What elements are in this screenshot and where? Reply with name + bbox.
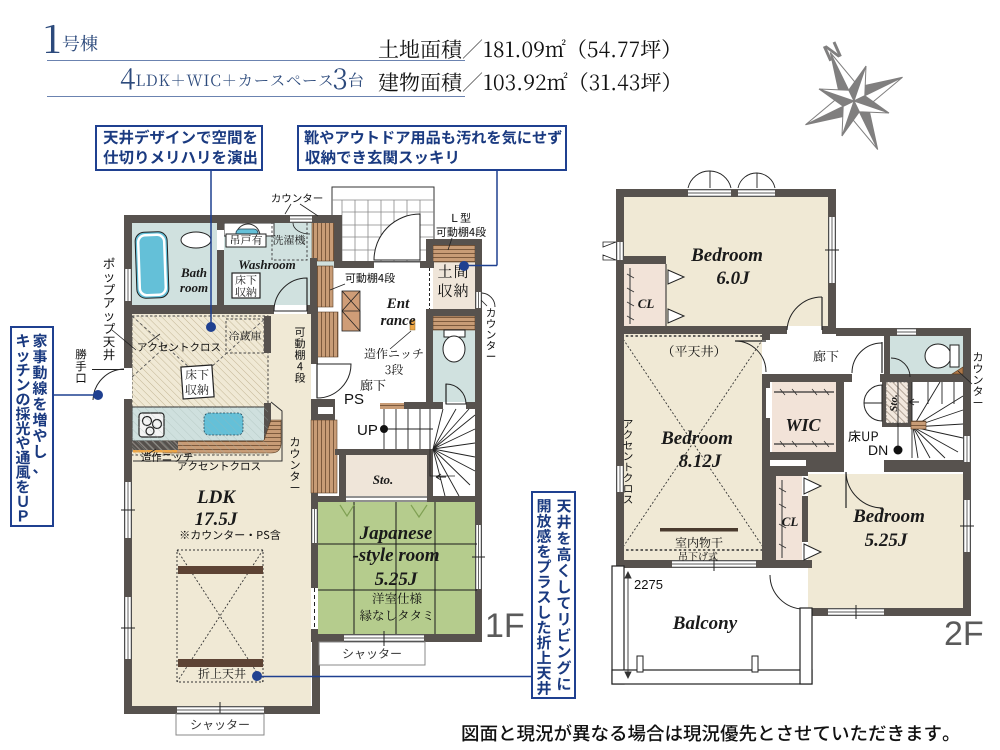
svg-text:Balcony: Balcony bbox=[672, 613, 738, 634]
svg-text:Washroom: Washroom bbox=[238, 257, 296, 272]
svg-text:UP: UP bbox=[357, 422, 378, 439]
svg-text:rance: rance bbox=[381, 313, 416, 329]
svg-text:CL: CL bbox=[782, 514, 799, 529]
svg-text:6.0J: 6.0J bbox=[716, 268, 750, 289]
svg-text:Sto.: Sto. bbox=[888, 394, 900, 411]
svg-text:Japanese: Japanese bbox=[359, 523, 433, 544]
svg-text:PS: PS bbox=[344, 391, 364, 408]
svg-text:LDK: LDK bbox=[196, 487, 236, 508]
svg-text:5.25J: 5.25J bbox=[375, 569, 418, 590]
svg-text:Bath: Bath bbox=[180, 265, 207, 280]
svg-text:-style room: -style room bbox=[352, 545, 439, 566]
svg-text:Ent: Ent bbox=[386, 296, 410, 312]
svg-text:8.12J: 8.12J bbox=[679, 451, 722, 472]
svg-text:1F: 1F bbox=[485, 607, 525, 645]
svg-text:Bedroom: Bedroom bbox=[660, 428, 733, 449]
svg-text:2275: 2275 bbox=[634, 577, 663, 592]
svg-text:5.25J: 5.25J bbox=[865, 530, 908, 551]
svg-text:17.5J: 17.5J bbox=[195, 509, 238, 530]
svg-text:2F: 2F bbox=[944, 615, 984, 653]
svg-text:Sto.: Sto. bbox=[373, 472, 394, 487]
svg-text:Bedroom: Bedroom bbox=[690, 245, 763, 266]
svg-text:CL: CL bbox=[638, 296, 655, 311]
svg-text:room: room bbox=[180, 280, 208, 295]
svg-text:WIC: WIC bbox=[785, 415, 821, 435]
svg-text:DN: DN bbox=[868, 442, 888, 458]
svg-text:Bedroom: Bedroom bbox=[852, 506, 925, 527]
